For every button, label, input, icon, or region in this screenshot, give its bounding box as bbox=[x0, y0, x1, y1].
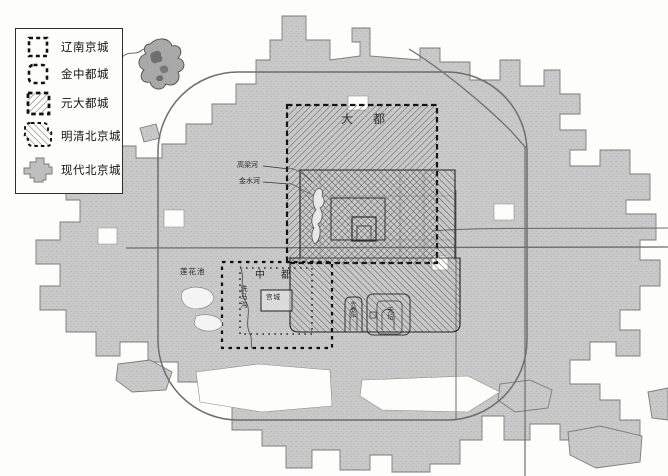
legend-box: 辽南京城 金中都城 元大都城 明清北京城 bbox=[15, 28, 123, 194]
label-xiannongtan: 先农坛 bbox=[349, 301, 355, 318]
legend-label: 辽南京城 bbox=[61, 39, 109, 55]
legend-label: 明清北京城 bbox=[61, 128, 121, 144]
legend-label: 元大都城 bbox=[61, 95, 109, 111]
beijing-historic-map-figure: 大都 中都 宫城 高梁河 金水河 莲花池 洗马沟 先农坛 天坛 辽南京城 金中都… bbox=[0, 0, 668, 476]
label-zhongdu: 中都 bbox=[255, 271, 307, 281]
legend-item-modern-beijing: 现代北京城 bbox=[22, 155, 118, 185]
legend-symbol-dashed-square-icon bbox=[22, 35, 54, 59]
label-dadu: 大都 bbox=[341, 113, 405, 125]
label-lianhua-pond: 莲花池 bbox=[180, 268, 206, 276]
label-gongcheng: 宫城 bbox=[266, 295, 281, 302]
legend-item-yuan-dadu: 元大都城 bbox=[22, 90, 118, 117]
label-xima-gou: 洗马沟 bbox=[240, 285, 247, 309]
legend-label: 金中都城 bbox=[61, 66, 109, 82]
legend-item-liao-nanjing: 辽南京城 bbox=[22, 35, 118, 59]
legend-label: 现代北京城 bbox=[61, 162, 121, 178]
label-tiantan: 天坛 bbox=[385, 307, 392, 320]
label-gaoliang-river: 高梁河 bbox=[237, 162, 258, 169]
legend-symbol-hatched-blob-icon bbox=[22, 120, 54, 152]
legend-symbol-hatched-square-icon bbox=[22, 90, 54, 117]
legend-symbol-gray-blob-icon bbox=[22, 155, 54, 185]
lianhua-pond-shape bbox=[181, 287, 214, 309]
summer-palace-blob bbox=[139, 39, 184, 89]
label-jinshui-river: 金水河 bbox=[239, 178, 260, 185]
legend-item-jin-zhongdu: 金中都城 bbox=[22, 62, 118, 86]
legend-symbol-dashed-rounded-square-icon bbox=[22, 62, 54, 86]
legend-item-ming-qing: 明清北京城 bbox=[22, 120, 118, 152]
